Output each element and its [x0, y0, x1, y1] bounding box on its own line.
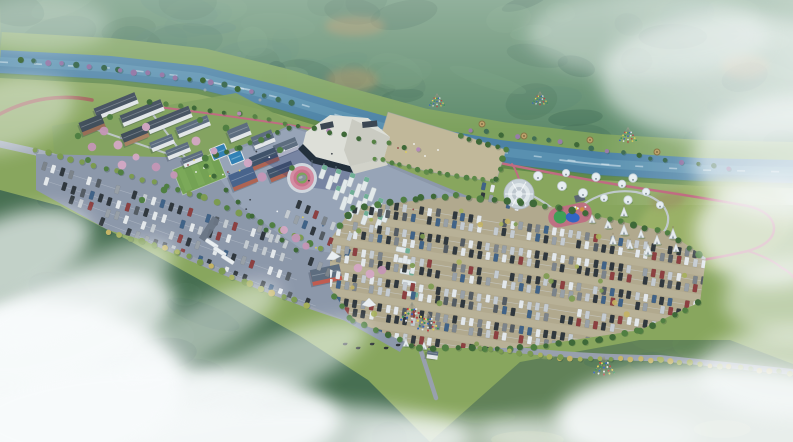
color-grade	[0, 0, 793, 442]
rendering-stage: Aerial rendering: riverside visitor cent…	[0, 0, 793, 442]
scene-svg: Aerial rendering: riverside visitor cent…	[0, 0, 793, 442]
